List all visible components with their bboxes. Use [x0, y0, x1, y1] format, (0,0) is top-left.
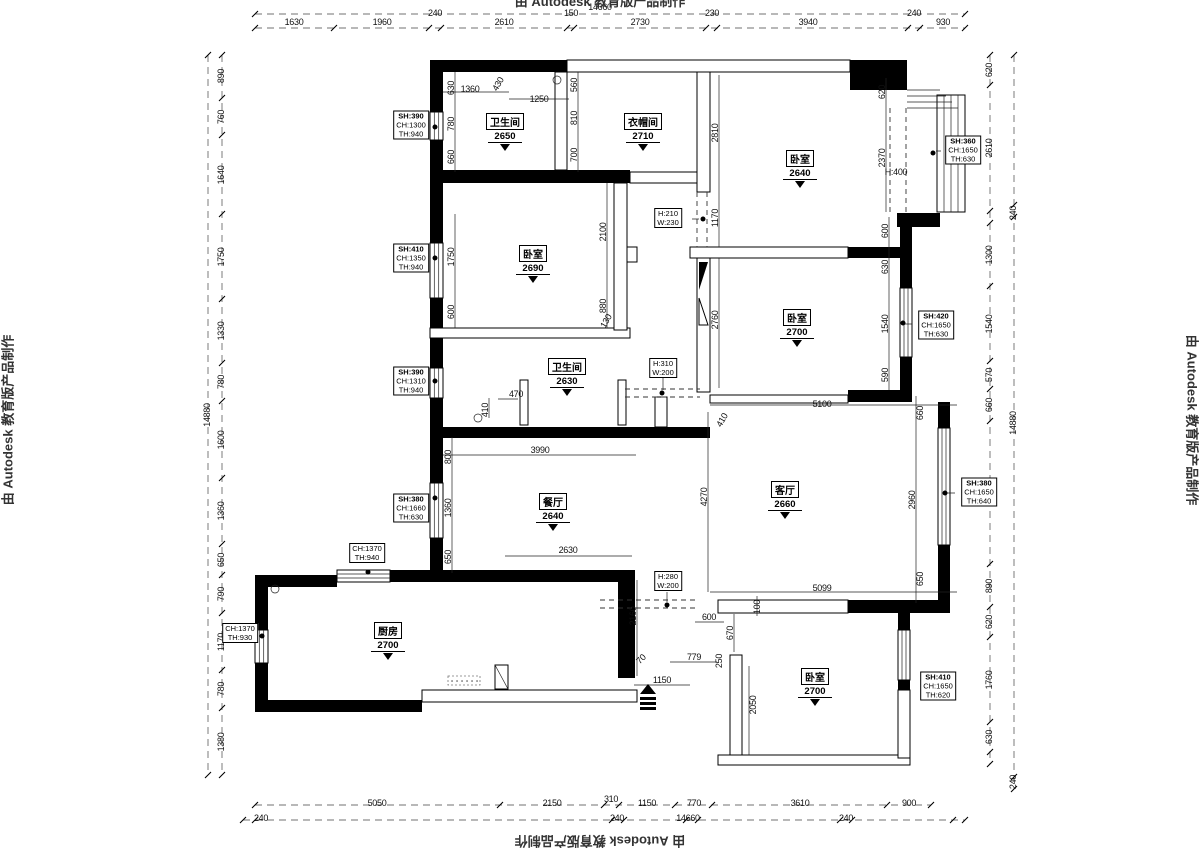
floorplan-canvas: 1466016301960240261015027302303940240930…: [0, 0, 1200, 857]
dim-label: 5099: [813, 583, 832, 593]
dim-label: 2610: [984, 139, 994, 158]
dim-label: 1360: [216, 502, 226, 521]
dim-label: 14880: [1008, 411, 1018, 435]
dim-label: 14880: [202, 403, 212, 427]
tag-line: SH:360: [948, 137, 978, 146]
dim-label: 880: [598, 299, 608, 313]
dim-label: 630: [446, 81, 456, 95]
dim-label: 1540: [984, 315, 994, 334]
dim-label: 230: [705, 8, 719, 18]
tag-line: TH:630: [948, 155, 978, 164]
dim-label: 600: [702, 612, 716, 622]
tag-line: W:200: [652, 368, 674, 377]
dim-label: 590: [880, 368, 890, 382]
watermark-left: 由 Autodesk 教育版产品制作: [0, 335, 17, 505]
dim-label: 14660: [676, 813, 700, 823]
window-door-tag: SH:410CH:1350TH:940: [393, 244, 429, 273]
dim-label: 3940: [799, 17, 818, 27]
dim-label: 2100: [598, 223, 608, 242]
dim-label: 5050: [368, 798, 387, 808]
dim-label: 410: [714, 411, 730, 428]
watermark-top: 由 Autodesk 教育版产品制作: [515, 0, 685, 10]
room-name: 卧室: [519, 245, 547, 262]
window-door-tag: CH:1370TH:930: [222, 623, 258, 643]
dim-label: 810: [569, 111, 579, 125]
room-label: 卧室2700: [798, 668, 832, 706]
dim-label: 470: [509, 389, 523, 399]
dim-label: 130: [598, 312, 614, 329]
dim-label: 240: [839, 813, 853, 823]
tag-line: CH:1650: [923, 682, 953, 691]
tag-line: H:210: [657, 209, 679, 218]
tag-line: CH:1650: [964, 488, 994, 497]
tag-line: CH:1650: [921, 321, 951, 330]
dim-label: 1960: [373, 17, 392, 27]
room-name: 卧室: [783, 309, 811, 326]
room-elevation: 2690: [516, 263, 550, 275]
dim-label: 1630: [285, 17, 304, 27]
dim-label: 570: [984, 368, 994, 382]
room-elevation: 2660: [768, 499, 802, 511]
dim-label: 770: [687, 798, 701, 808]
room-elevation: 2700: [798, 686, 832, 698]
dim-label: 430: [490, 75, 506, 92]
watermark-right: 由 Autodesk 教育版产品制作: [1184, 335, 1200, 505]
room-name: 卫生间: [486, 113, 524, 130]
window-door-tag: SH:360CH:1650TH:630: [945, 136, 981, 165]
dim-label: 660: [984, 398, 994, 412]
window-door-tag: SH:390CH:1300TH:940: [393, 111, 429, 140]
dim-label: 410: [480, 403, 490, 417]
dim-label: 1640: [216, 166, 226, 185]
tag-line: CH:1660: [396, 504, 426, 513]
dim-label: 930: [936, 17, 950, 27]
tag-line: CH:1370: [352, 544, 382, 553]
tag-line: SH:390: [396, 368, 426, 377]
dim-label: 560: [569, 78, 579, 92]
room-name: 餐厅: [539, 493, 567, 510]
tag-line: TH:630: [921, 330, 951, 339]
dim-label: 240: [254, 813, 268, 823]
window-door-tag: SH:390CH:1310TH:940: [393, 367, 429, 396]
dim-label: 1150: [638, 798, 656, 808]
window-door-tag: SH:380CH:1660TH:630: [393, 494, 429, 523]
dim-label: 2960: [907, 491, 917, 510]
dim-label: 630: [984, 730, 994, 744]
window-door-tag: H:280W:200: [654, 571, 682, 591]
dim-label: 1170: [710, 209, 720, 227]
dim-label: 5100: [813, 399, 832, 409]
tag-line: CH:1650: [948, 146, 978, 155]
dim-label: 240: [1008, 775, 1018, 789]
tag-line: TH:620: [923, 691, 953, 700]
elevation-triangle-icon: [810, 699, 820, 706]
watermark-bottom: 由 Autodesk 教育版产品制作: [515, 833, 685, 852]
tag-line: SH:410: [923, 673, 953, 682]
dim-label: 1380: [216, 733, 226, 752]
dim-label: 3990: [531, 445, 550, 455]
tag-line: TH:940: [396, 263, 426, 272]
window-door-tag: SH:380CH:1650TH:640: [961, 478, 997, 507]
dim-label: 1750: [446, 248, 456, 267]
tag-line: TH:940: [352, 553, 382, 562]
tag-line: TH:940: [396, 386, 426, 395]
elevation-triangle-icon: [795, 181, 805, 188]
dim-label: 310: [604, 794, 618, 804]
tag-line: CH:1350: [396, 254, 426, 263]
elevation-triangle-icon: [780, 512, 790, 519]
dim-label: 600: [446, 305, 456, 319]
tag-line: CH:1370: [225, 624, 255, 633]
window-door-tag: CH:1370TH:940: [349, 543, 385, 563]
dim-label: 1750: [216, 248, 226, 267]
elevation-triangle-icon: [562, 389, 572, 396]
room-label: 客厅2660: [768, 481, 802, 519]
dim-label: 650: [216, 553, 226, 567]
room-elevation: 2650: [488, 131, 522, 143]
room-elevation: 2700: [780, 327, 814, 339]
tag-line: CH:1300: [396, 121, 426, 130]
dim-label: 890: [984, 579, 994, 593]
dim-label: 2760: [710, 311, 720, 330]
dim-label: 900: [902, 798, 916, 808]
dim-label: 1330: [216, 322, 226, 341]
dim-label: 2730: [631, 17, 650, 27]
dim-label: 670: [725, 626, 735, 640]
dim-label: 3610: [791, 798, 810, 808]
dim-label: 1150: [653, 675, 671, 685]
dim-label: 660: [915, 406, 925, 420]
dim-label: 760: [216, 110, 226, 124]
dim-label: 600: [880, 224, 890, 238]
dim-label: 2370: [877, 149, 887, 168]
dim-label: 1760: [984, 671, 994, 690]
dim-label: 779: [687, 652, 701, 662]
tag-line: SH:410: [396, 245, 426, 254]
dim-label: 660: [446, 150, 456, 164]
room-label: 卫生间2630: [548, 358, 586, 396]
dim-label: 620: [984, 63, 994, 77]
dim-label: 240: [428, 8, 442, 18]
dim-label: 2630: [559, 545, 578, 555]
tag-line: W:200: [657, 581, 679, 590]
elevation-triangle-icon: [548, 524, 558, 531]
tag-line: CH:1310: [396, 377, 426, 386]
room-name: 厨房: [374, 622, 402, 639]
dim-label: 780: [216, 682, 226, 696]
tag-line: TH:940: [396, 130, 426, 139]
room-label: 卫生间2650: [486, 113, 524, 151]
dim-label: 620: [984, 615, 994, 629]
room-label: 衣帽间2710: [624, 113, 662, 151]
dim-label: H:400: [885, 167, 908, 177]
dim-label: 800: [443, 450, 453, 464]
dim-label: 1540: [880, 315, 890, 334]
dim-label: 2160: [628, 607, 638, 626]
room-label: 厨房2700: [371, 622, 405, 660]
room-label: 餐厅2640: [536, 493, 570, 531]
dim-label: 100: [752, 600, 762, 614]
tag-line: W:230: [657, 218, 679, 227]
room-label: 卧室2690: [516, 245, 550, 283]
room-label: 卧室2700: [780, 309, 814, 347]
tag-line: TH:640: [964, 497, 994, 506]
dim-label: 250: [714, 654, 724, 668]
dim-label: 890: [216, 69, 226, 83]
tag-line: TH:930: [225, 633, 255, 642]
room-elevation: 2640: [783, 168, 817, 180]
elevation-triangle-icon: [500, 144, 510, 151]
dim-label: 1600: [216, 431, 226, 450]
room-elevation: 2640: [536, 511, 570, 523]
tag-line: TH:630: [396, 513, 426, 522]
dim-label: 1300: [984, 246, 994, 265]
dim-label: 630: [880, 260, 890, 274]
tag-line: SH:420: [921, 312, 951, 321]
dim-label: 2150: [543, 798, 562, 808]
dim-label: 780: [216, 375, 226, 389]
dim-label: 650: [443, 550, 453, 564]
room-elevation: 2630: [550, 376, 584, 388]
labels-layer: 1466016301960240261015027302303940240930…: [0, 0, 1200, 857]
dim-label: 700: [569, 148, 579, 162]
dim-label: 240: [1008, 206, 1018, 220]
room-name: 客厅: [771, 481, 799, 498]
room-label: 卧室2640: [783, 150, 817, 188]
window-door-tag: SH:420CH:1650TH:630: [918, 311, 954, 340]
dim-label: 1250: [530, 94, 549, 104]
room-name: 卧室: [801, 668, 829, 685]
window-door-tag: H:210W:230: [654, 208, 682, 228]
dim-label: 790: [216, 587, 226, 601]
room-name: 卫生间: [548, 358, 586, 375]
tag-line: H:280: [657, 572, 679, 581]
tag-line: SH:380: [964, 479, 994, 488]
room-name: 卧室: [786, 150, 814, 167]
dim-label: 240: [907, 8, 921, 18]
elevation-triangle-icon: [792, 340, 802, 347]
window-door-tag: SH:410CH:1650TH:620: [920, 672, 956, 701]
tag-line: SH:390: [396, 112, 426, 121]
dim-label: 2050: [748, 696, 758, 715]
elevation-triangle-icon: [383, 653, 393, 660]
elevation-triangle-icon: [638, 144, 648, 151]
window-door-tag: H:310W:200: [649, 358, 677, 378]
elevation-triangle-icon: [528, 276, 538, 283]
room-elevation: 2710: [626, 131, 660, 143]
dim-label: 650: [915, 572, 925, 586]
dim-label: 2610: [495, 17, 514, 27]
room-elevation: 2700: [371, 640, 405, 652]
tag-line: H:310: [652, 359, 674, 368]
tag-line: SH:380: [396, 495, 426, 504]
dim-label: 1360: [443, 499, 453, 518]
dim-label: 620: [877, 85, 887, 99]
dim-label: 4270: [699, 488, 709, 507]
dim-label: 780: [446, 117, 456, 131]
dim-label: 70: [634, 652, 648, 666]
dim-label: 2810: [710, 124, 720, 143]
room-name: 衣帽间: [624, 113, 662, 130]
dim-label: 1360: [461, 84, 480, 94]
dim-label: 240: [610, 813, 624, 823]
